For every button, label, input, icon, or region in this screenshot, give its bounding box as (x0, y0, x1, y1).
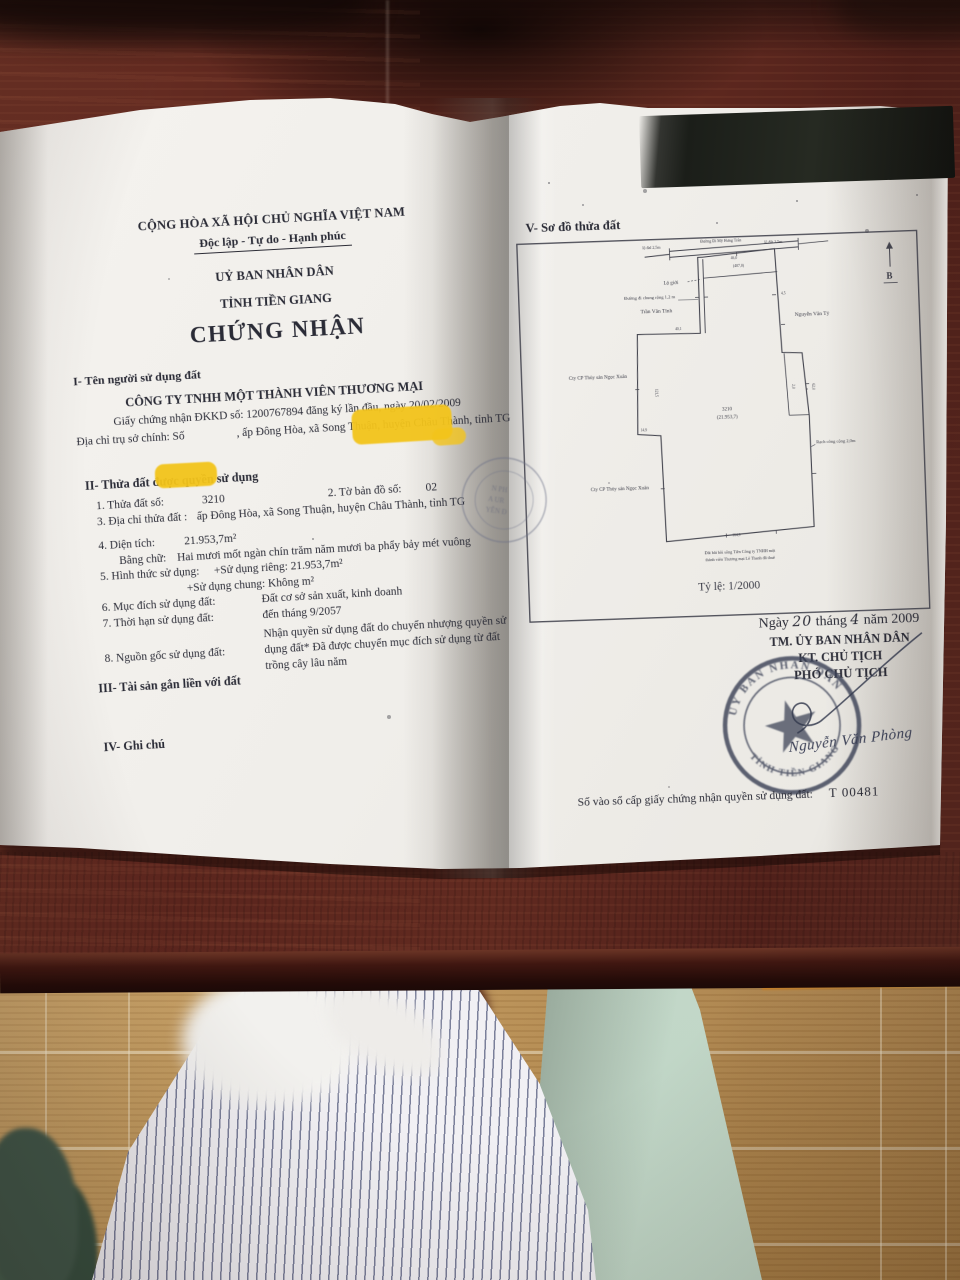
motto: Độc lập - Tự do - Hạnh phúc (193, 228, 352, 255)
floor-joint (945, 958, 947, 1280)
faded-fold-stamp: N PH A UR YÊN Đ (445, 439, 563, 562)
svg-text:N PH: N PH (491, 484, 508, 494)
certificate-title: CHỨNG NHẬN (112, 314, 442, 347)
hq-address-prefix: Địa chỉ trụ sở chính: Số (76, 430, 185, 448)
cadastral-map: B lộ đal 2,5m Đường Đi Mỹ Hưng Trân lộ đ… (516, 230, 931, 624)
section5-heading: V- Sơ đồ thửa đất (525, 218, 620, 236)
dim-number: 14,9 (641, 428, 648, 433)
road-label-left: lộ đal 2,5m (642, 245, 661, 252)
lo-gioi-label: Lộ giới (664, 281, 680, 287)
north-arrow-icon: B (882, 241, 897, 282)
neighbor-left-label: Trần Văn Tính (640, 307, 672, 315)
map-scale: Tỷ lệ: 1/2000 (698, 579, 761, 593)
floor-joint (880, 958, 882, 1280)
yellow-highlight-address (154, 461, 217, 488)
svg-text:YÊN Đ: YÊN Đ (485, 506, 507, 517)
issuer-line2: TỈNH TIỀN GIANG (111, 285, 441, 318)
page-right: V- Sơ đồ thửa đất B lộ đal 2,5m Đường Đi… (505, 82, 960, 857)
term-value: đến tháng 9/2057 (262, 603, 342, 622)
parcel-area-label: (21.953,7) (717, 415, 738, 421)
parcel-number-label: 3210 (722, 407, 733, 412)
north-label: B (886, 271, 892, 281)
path-label: Đường đi chung rộng 1,2 m (624, 294, 676, 302)
origin-label: 8. Nguồn gốc sử dụng đất: (104, 645, 225, 667)
dim-number: 164,9 (732, 533, 740, 538)
dim-number: 62,0 (810, 383, 815, 390)
parcel-no-value: 3210 (202, 492, 226, 508)
canal-label: Rạch công cộng 2,0m (816, 438, 856, 445)
company-left-label-2: Cty CP Thủy sản Ngọc Xuân (591, 486, 650, 493)
black-redaction-bar (639, 106, 955, 188)
dim-number: 40,1 (675, 327, 682, 332)
road-label-center: Đường Đi Mỹ Hưng Trân (700, 237, 741, 243)
neighbor-right-label: Nguyễn Văn Tỷ (795, 310, 830, 318)
map-sheet-value: 02 (425, 480, 437, 496)
strip-area-label: (407,0) (733, 264, 745, 269)
photo-of-land-certificate: CỘNG HÒA XÃ HỘI CHỦ NGHĨA VIỆT NAM Độc l… (0, 0, 960, 1280)
desk-front-edge (0, 947, 960, 994)
dim-number: 121,5 (653, 389, 658, 397)
registry-line: Số vào sổ cấp giấy chứng nhận quyền sử d… (577, 783, 879, 810)
dim-number: 2,0 (790, 384, 795, 389)
lo-gioi-strip-line (703, 272, 777, 279)
desk-seam (386, 0, 389, 118)
svg-text:A UR: A UR (488, 495, 505, 505)
issuer-line1: UỶ BAN NHÂN DÂN (109, 258, 439, 291)
road-label-right: lộ đất 2,5m (764, 239, 783, 246)
dim-number: 4,5 (781, 291, 786, 296)
path-east-line (703, 259, 706, 333)
company-left-label-1: Cty CP Thủy sản Ngọc Xuân (569, 375, 628, 382)
registry-number: T 00481 (829, 783, 880, 800)
dim-number: 46,0 (731, 256, 738, 261)
redacted-gap (185, 436, 237, 439)
map-border (517, 230, 930, 622)
page-left: CỘNG HÒA XÃ HỘI CHỦ NGHĨA VIỆT NAM Độc l… (58, 194, 511, 756)
map-note-line2: thành viên Thương mại Lê Thanh đã thuê (705, 555, 775, 562)
